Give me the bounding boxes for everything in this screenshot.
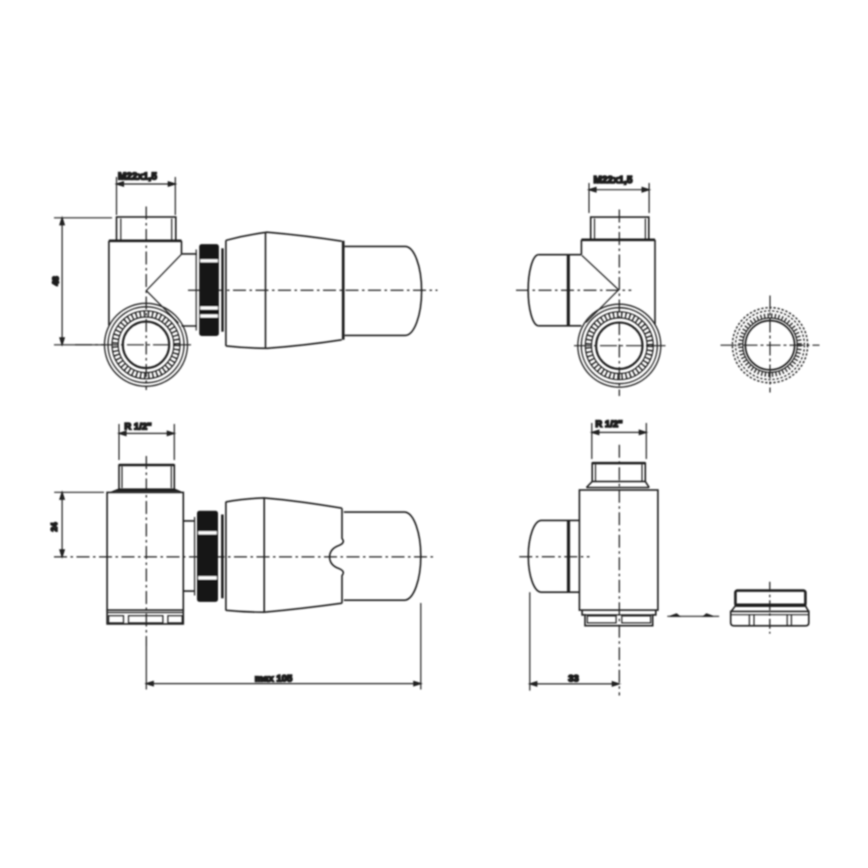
svg-text:24: 24: [50, 522, 59, 531]
svg-text:M22x1,5: M22x1,5: [118, 172, 157, 183]
svg-text:R 1/2": R 1/2": [595, 419, 622, 430]
svg-text:48: 48: [51, 276, 61, 286]
svg-text:M22x1,5: M22x1,5: [594, 175, 633, 186]
svg-text:R 1/2": R 1/2": [124, 422, 151, 433]
svg-text:max 105: max 105: [255, 674, 293, 685]
svg-text:33: 33: [568, 674, 579, 685]
